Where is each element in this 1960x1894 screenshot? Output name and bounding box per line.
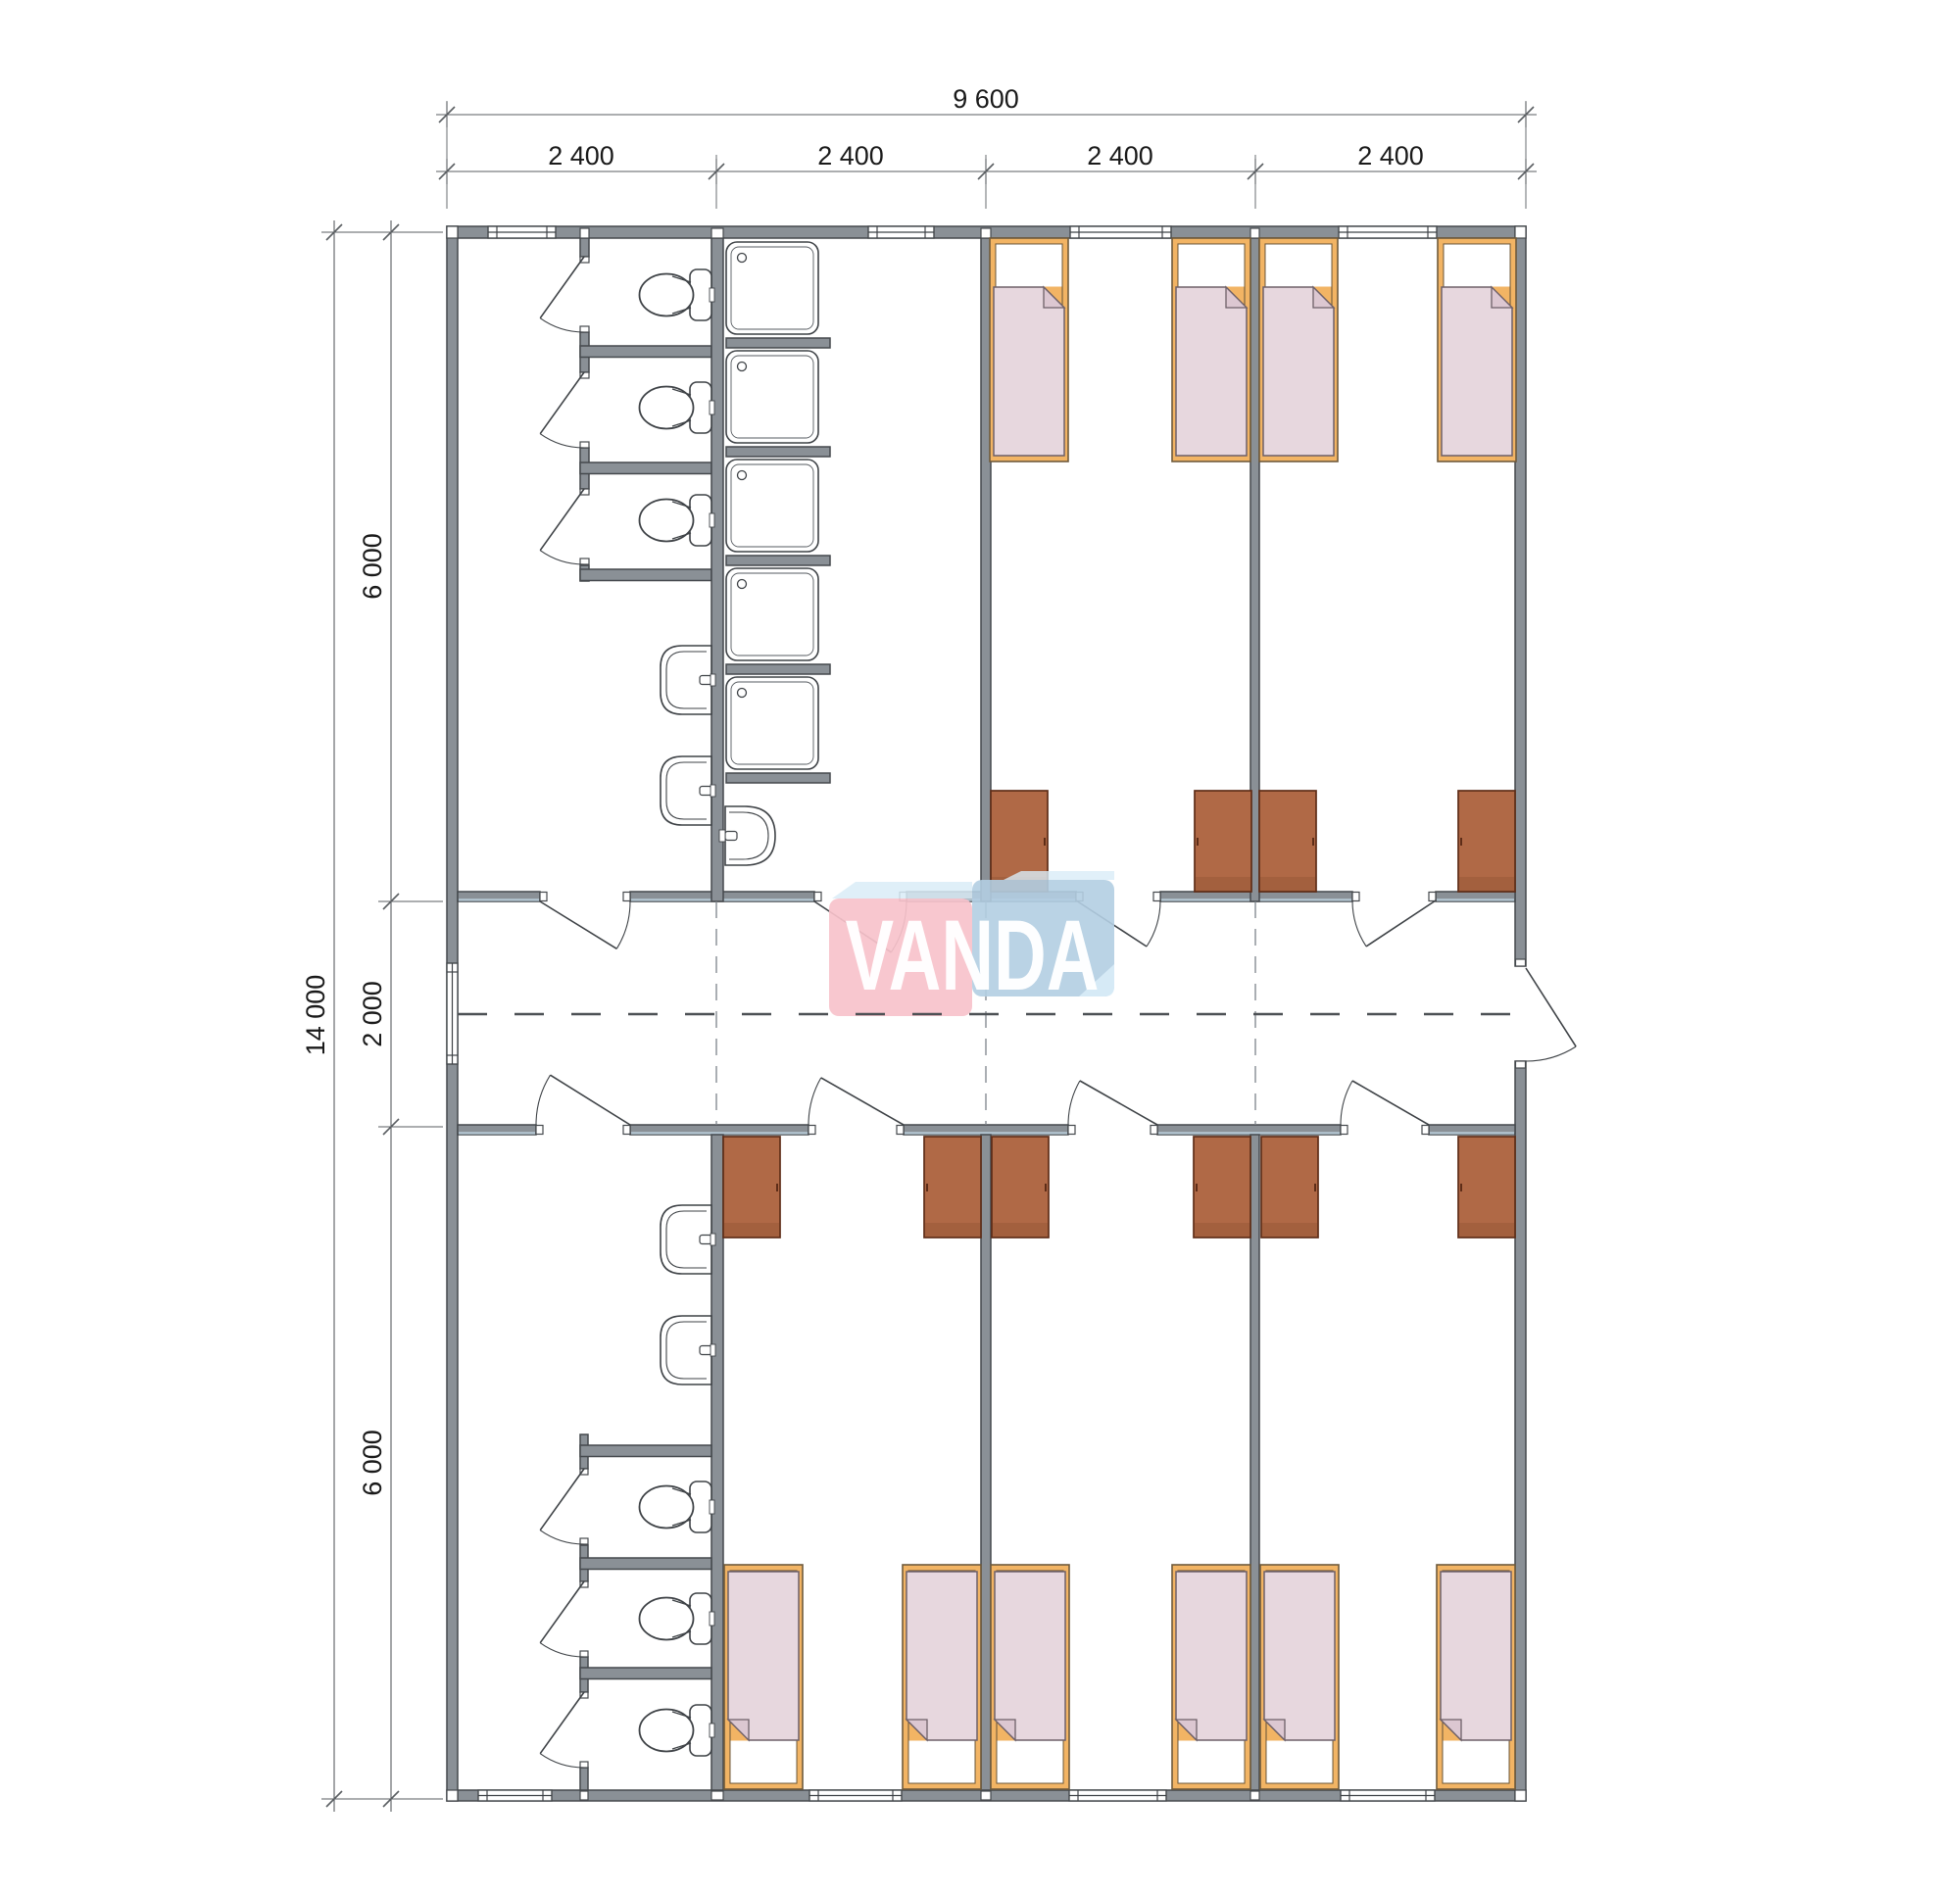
svg-text:2 400: 2 400 bbox=[1087, 141, 1153, 170]
svg-text:6 000: 6 000 bbox=[358, 533, 387, 600]
svg-text:14 000: 14 000 bbox=[301, 975, 330, 1056]
svg-text:2 400: 2 400 bbox=[817, 141, 884, 170]
svg-text:9 600: 9 600 bbox=[953, 84, 1019, 114]
svg-text:2 400: 2 400 bbox=[548, 141, 614, 170]
svg-text:6 000: 6 000 bbox=[358, 1430, 387, 1496]
svg-text:2 400: 2 400 bbox=[1357, 141, 1424, 170]
svg-text:2 000: 2 000 bbox=[358, 981, 387, 1047]
svg-text:VANDA: VANDA bbox=[846, 899, 1100, 1011]
